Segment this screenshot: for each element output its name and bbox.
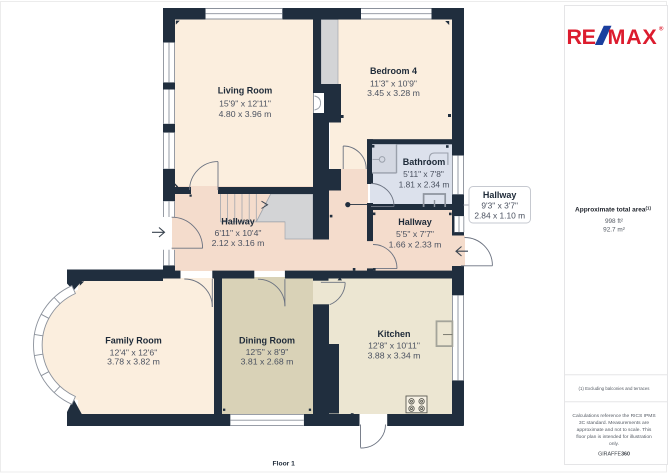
svg-text:Hallway: Hallway [221, 217, 255, 227]
svg-text:Approximate total area(1): Approximate total area(1) [575, 206, 651, 214]
svg-text:Hallway: Hallway [483, 190, 517, 200]
svg-text:3.88 x 3.34 m: 3.88 x 3.34 m [368, 351, 421, 361]
svg-text:9'3" x 3'7": 9'3" x 3'7" [481, 201, 518, 211]
svg-text:3.81 x 2.68 m: 3.81 x 2.68 m [241, 357, 294, 367]
svg-text:floor plan is intended for ill: floor plan is intended for illustration [576, 434, 652, 440]
svg-text:Calculations reference the RIC: Calculations reference the RICS IPMS [572, 413, 656, 419]
svg-text:2.12 x 3.16 m: 2.12 x 3.16 m [212, 238, 265, 248]
svg-text:1.66 x 2.33 m: 1.66 x 2.33 m [389, 240, 442, 250]
svg-text:5'11" x 7'8": 5'11" x 7'8" [403, 169, 444, 179]
svg-text:Kitchen: Kitchen [377, 329, 410, 339]
svg-text:6'11" x 10'4": 6'11" x 10'4" [215, 228, 262, 238]
svg-text:4.80 x 3.96 m: 4.80 x 3.96 m [219, 109, 272, 119]
svg-text:2.84 x 1.10 m: 2.84 x 1.10 m [474, 211, 525, 221]
svg-text:GIRAFFE360: GIRAFFE360 [598, 452, 630, 458]
svg-text:3.78 x 3.82 m: 3.78 x 3.82 m [107, 357, 160, 367]
svg-text:998 ft²: 998 ft² [605, 218, 623, 225]
svg-text:92.7 m²: 92.7 m² [603, 227, 625, 234]
svg-text:5'5" x 7'7": 5'5" x 7'7" [396, 229, 434, 239]
svg-text:3C standard. Measurements are: 3C standard. Measurements are [579, 420, 649, 426]
svg-text:Dining Room: Dining Room [239, 336, 295, 346]
svg-text:RE: RE [567, 25, 596, 49]
svg-text:3.45 x 3.28 m: 3.45 x 3.28 m [367, 88, 420, 98]
svg-text:Floor 1: Floor 1 [273, 461, 296, 468]
svg-text:15'9" x 12'11": 15'9" x 12'11" [219, 99, 271, 109]
svg-text:12'8" x 10'11": 12'8" x 10'11" [368, 341, 420, 351]
svg-text:Bathroom: Bathroom [403, 157, 446, 167]
svg-text:approximate and not to scale.: approximate and not to scale. This [577, 427, 652, 433]
svg-text:only.: only. [609, 441, 619, 447]
svg-text:1.81 x 2.34 m: 1.81 x 2.34 m [399, 180, 450, 190]
svg-text:Living Room: Living Room [218, 86, 273, 96]
svg-text:12'5" x 8'9": 12'5" x 8'9" [246, 347, 289, 357]
svg-text:MAX: MAX [608, 25, 658, 49]
svg-text:Family Room: Family Room [105, 336, 162, 346]
svg-text:Bedroom 4: Bedroom 4 [370, 66, 417, 76]
svg-text:®: ® [659, 26, 664, 33]
svg-text:11'3" x 10'9": 11'3" x 10'9" [370, 79, 417, 89]
svg-text:Hallway: Hallway [398, 217, 432, 227]
svg-text:(1) Excluding balconies and te: (1) Excluding balconies and terraces [578, 386, 650, 391]
